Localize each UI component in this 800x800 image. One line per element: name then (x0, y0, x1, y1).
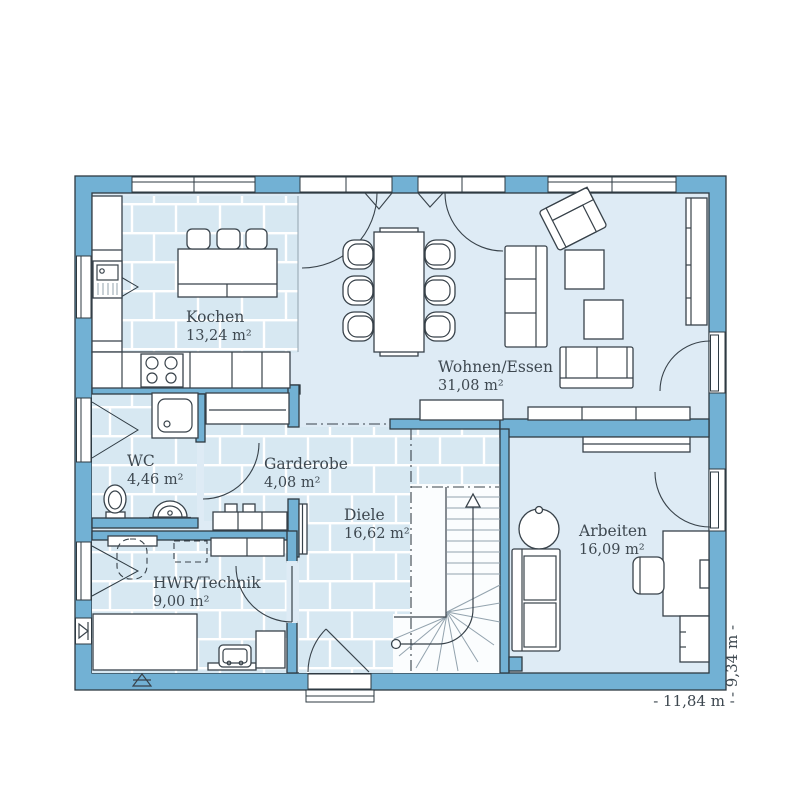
drawer-unit (680, 616, 709, 662)
desk-chair (633, 557, 664, 594)
bookshelf (686, 198, 707, 325)
label-arbeiten-area: 16,09 m² (579, 542, 645, 558)
hwr-cabinet-top (211, 538, 284, 556)
label-kochen-area: 13,24 m² (186, 328, 252, 344)
sofa-long (505, 246, 547, 347)
french-door-left (300, 177, 392, 192)
bar-stool (187, 229, 210, 249)
office-shelf (583, 437, 690, 452)
wall-wohnen-arbeiten (500, 419, 709, 437)
label-kochen: Kochen (186, 308, 244, 326)
shower (152, 393, 198, 438)
toilet (104, 485, 126, 518)
kitchen-sink (93, 261, 122, 298)
wall-wc-bottom (92, 518, 198, 528)
vent-symbol-left (76, 618, 92, 644)
office-sofa (512, 549, 560, 651)
label-wc-area: 4,46 m² (127, 472, 183, 488)
label-hwr: HWR/Technik (153, 574, 261, 592)
coffee-table (565, 250, 604, 289)
wall-hwr-right-bottom (287, 622, 297, 673)
label-garderobe-area: 4,08 m² (264, 475, 320, 491)
cooktop (141, 354, 183, 387)
hwr-counter (108, 536, 157, 546)
label-arbeiten: Arbeiten (578, 522, 647, 540)
wardrobe (206, 393, 289, 424)
hall-cabinet (299, 504, 307, 554)
bar-stool (217, 229, 240, 249)
dining-table (374, 228, 424, 356)
monitor (700, 560, 709, 588)
label-diele: Diele (344, 506, 385, 524)
label-wohnen-essen-area: 31,08 m² (438, 378, 504, 394)
label-diele-area: 16,62 m² (344, 526, 410, 542)
sofa-small (560, 347, 633, 388)
label-wohnen-essen: Wohnen/Essen (438, 358, 553, 376)
sideboard-long (528, 407, 690, 420)
coffee-table (584, 300, 623, 339)
label-hwr-area: 9,00 m² (153, 594, 209, 610)
kitchen-island (178, 249, 277, 297)
window-kitchen (132, 177, 255, 192)
dimension-height: - 9,34 m - (723, 625, 741, 697)
label-wc: WC (127, 452, 155, 470)
sideboard-low (420, 400, 503, 420)
label-garderobe: Garderobe (264, 455, 348, 473)
floor-plan-canvas: Kochen 13,24 m² Wohnen/Essen 31,08 m² WC… (0, 0, 800, 800)
bar-stool (246, 229, 267, 249)
workbench (93, 614, 197, 670)
wall-hwr-right-top (287, 531, 297, 562)
french-door-right (418, 177, 505, 192)
wall-stairs-arbeiten (500, 429, 509, 673)
window-living (548, 177, 676, 192)
hwr-cabinet-right (256, 631, 285, 668)
wall-pier-arbeiten (509, 657, 522, 671)
floor-plan-page: Kochen 13,24 m² Wohnen/Essen 31,08 m² WC… (0, 0, 800, 800)
